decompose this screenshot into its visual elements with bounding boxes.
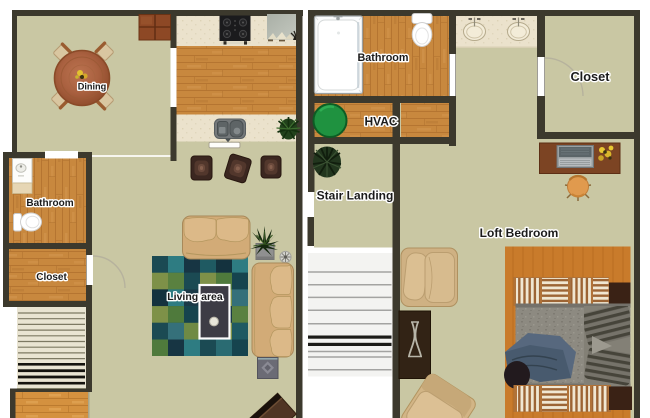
svg-text:Stair Landing: Stair Landing — [317, 189, 394, 203]
svg-text:Living area: Living area — [167, 291, 223, 303]
svg-text:HVAC: HVAC — [364, 115, 397, 129]
svg-text:Bathroom: Bathroom — [26, 198, 73, 209]
svg-text:Loft Bedroom: Loft Bedroom — [480, 226, 559, 240]
svg-text:Dining: Dining — [78, 82, 107, 92]
svg-text:Closet: Closet — [36, 272, 67, 283]
svg-text:Bathroom: Bathroom — [358, 52, 409, 64]
svg-text:Closet: Closet — [570, 69, 610, 84]
